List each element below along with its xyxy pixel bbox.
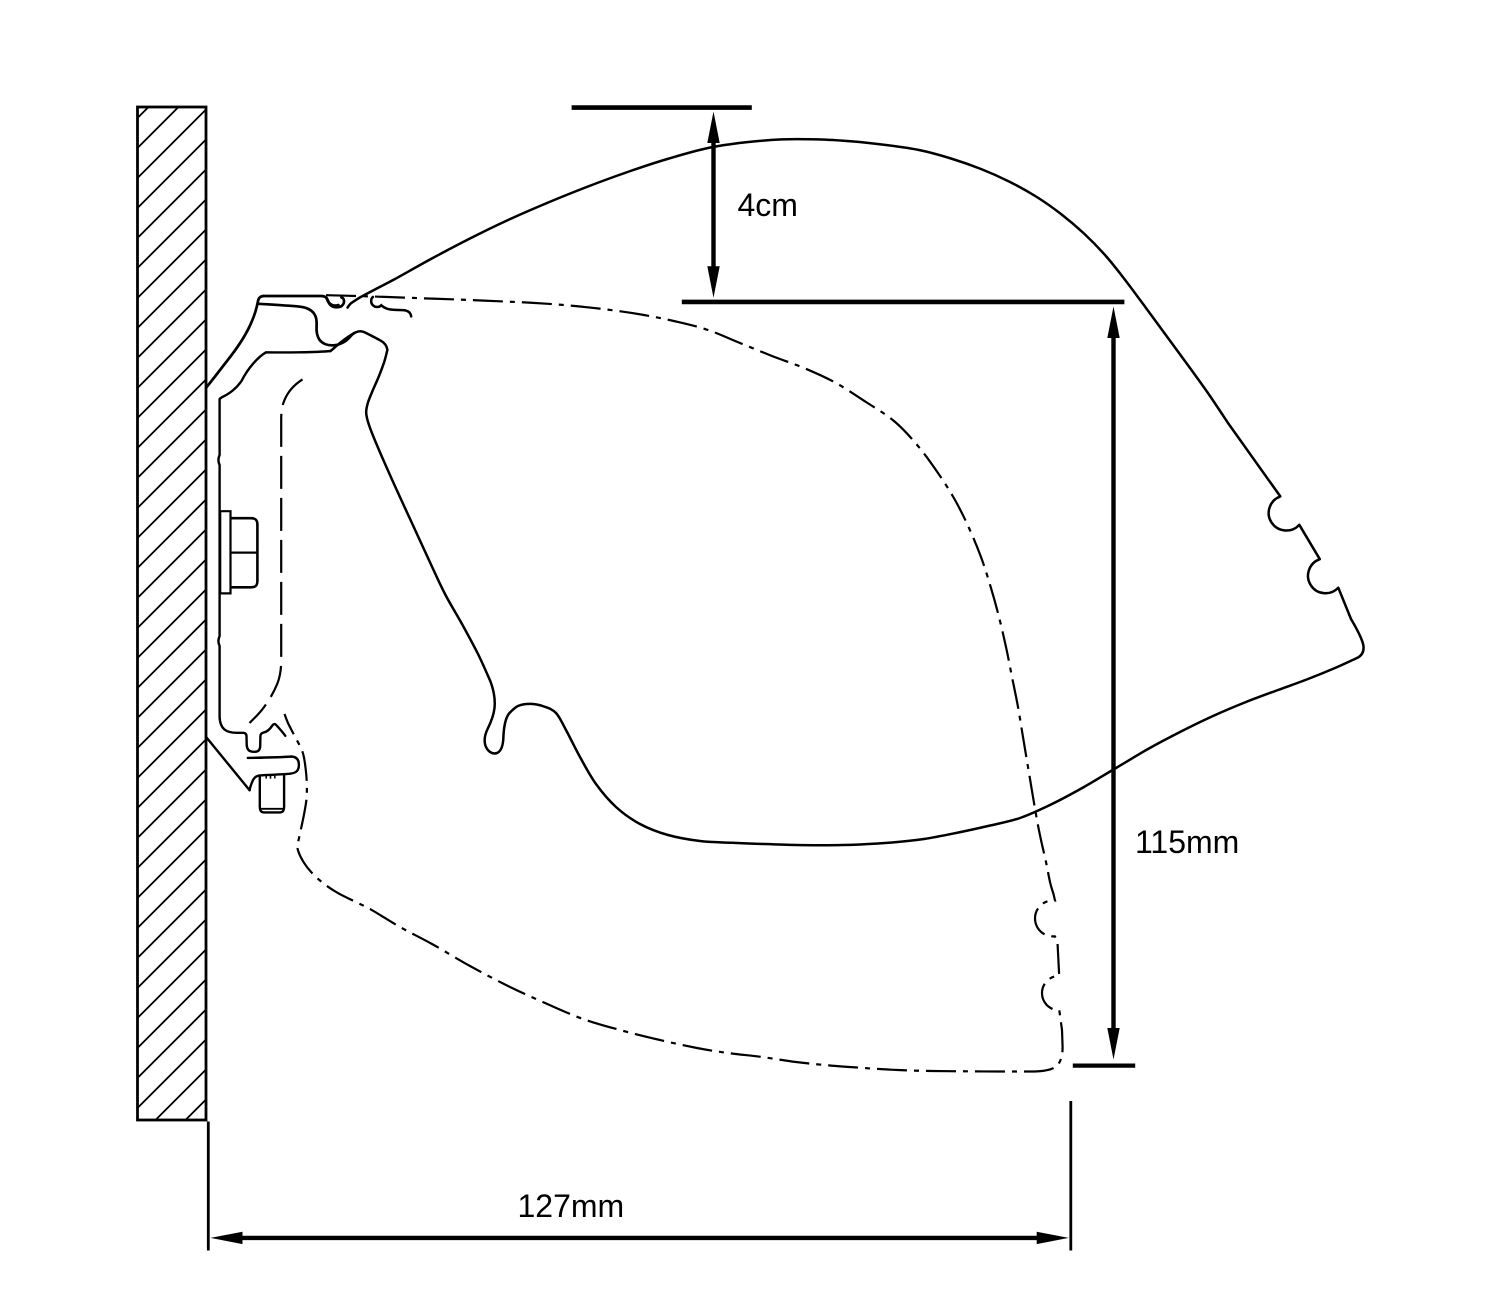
svg-text:115mm: 115mm (1135, 824, 1239, 860)
svg-text:4cm: 4cm (738, 187, 798, 223)
svg-text:127mm: 127mm (518, 1188, 625, 1224)
